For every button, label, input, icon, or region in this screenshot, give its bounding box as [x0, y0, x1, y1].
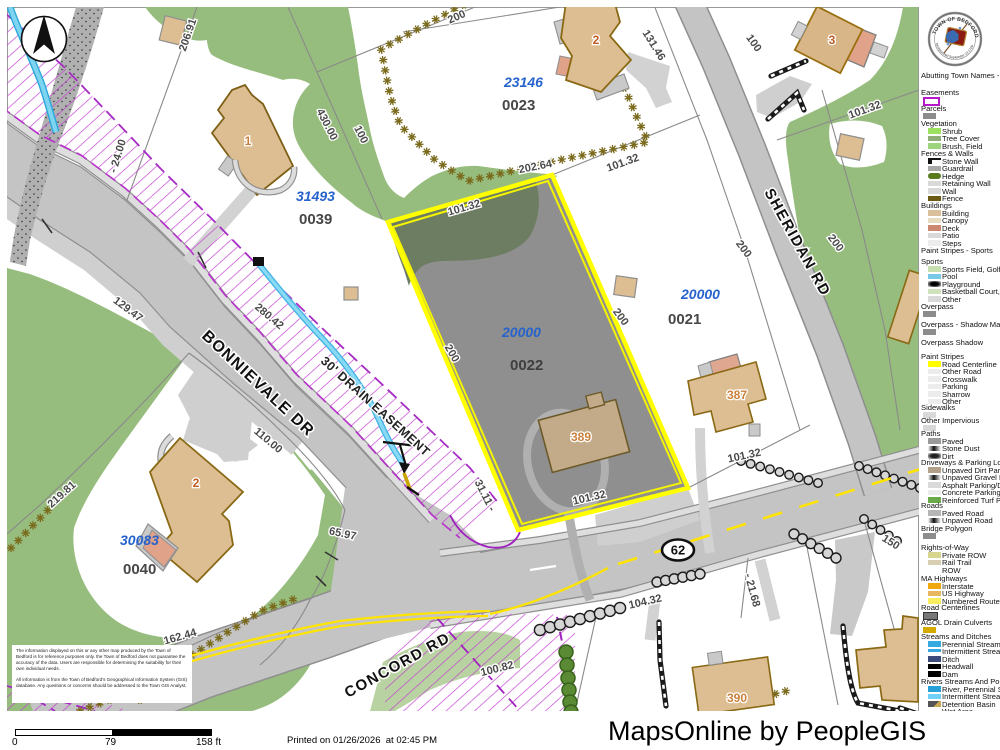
svg-text:20000: 20000 — [501, 324, 541, 340]
svg-text:389: 389 — [571, 430, 591, 444]
svg-text:62: 62 — [671, 543, 685, 558]
svg-text:31493: 31493 — [296, 188, 335, 204]
svg-text:30083: 30083 — [120, 532, 159, 548]
svg-text:0023: 0023 — [502, 97, 535, 114]
svg-text:2: 2 — [593, 33, 600, 47]
svg-text:0039: 0039 — [299, 211, 332, 228]
svg-text:390: 390 — [727, 691, 747, 705]
svg-text:20000: 20000 — [680, 286, 720, 302]
svg-text:0040: 0040 — [123, 561, 156, 578]
svg-text:2: 2 — [193, 476, 200, 490]
svg-text:0021: 0021 — [668, 311, 701, 328]
svg-text:0022: 0022 — [510, 357, 543, 374]
svg-text:1: 1 — [245, 134, 252, 148]
svg-text:387: 387 — [727, 388, 747, 402]
svg-text:3: 3 — [829, 33, 836, 47]
svg-text:23146: 23146 — [503, 74, 543, 90]
